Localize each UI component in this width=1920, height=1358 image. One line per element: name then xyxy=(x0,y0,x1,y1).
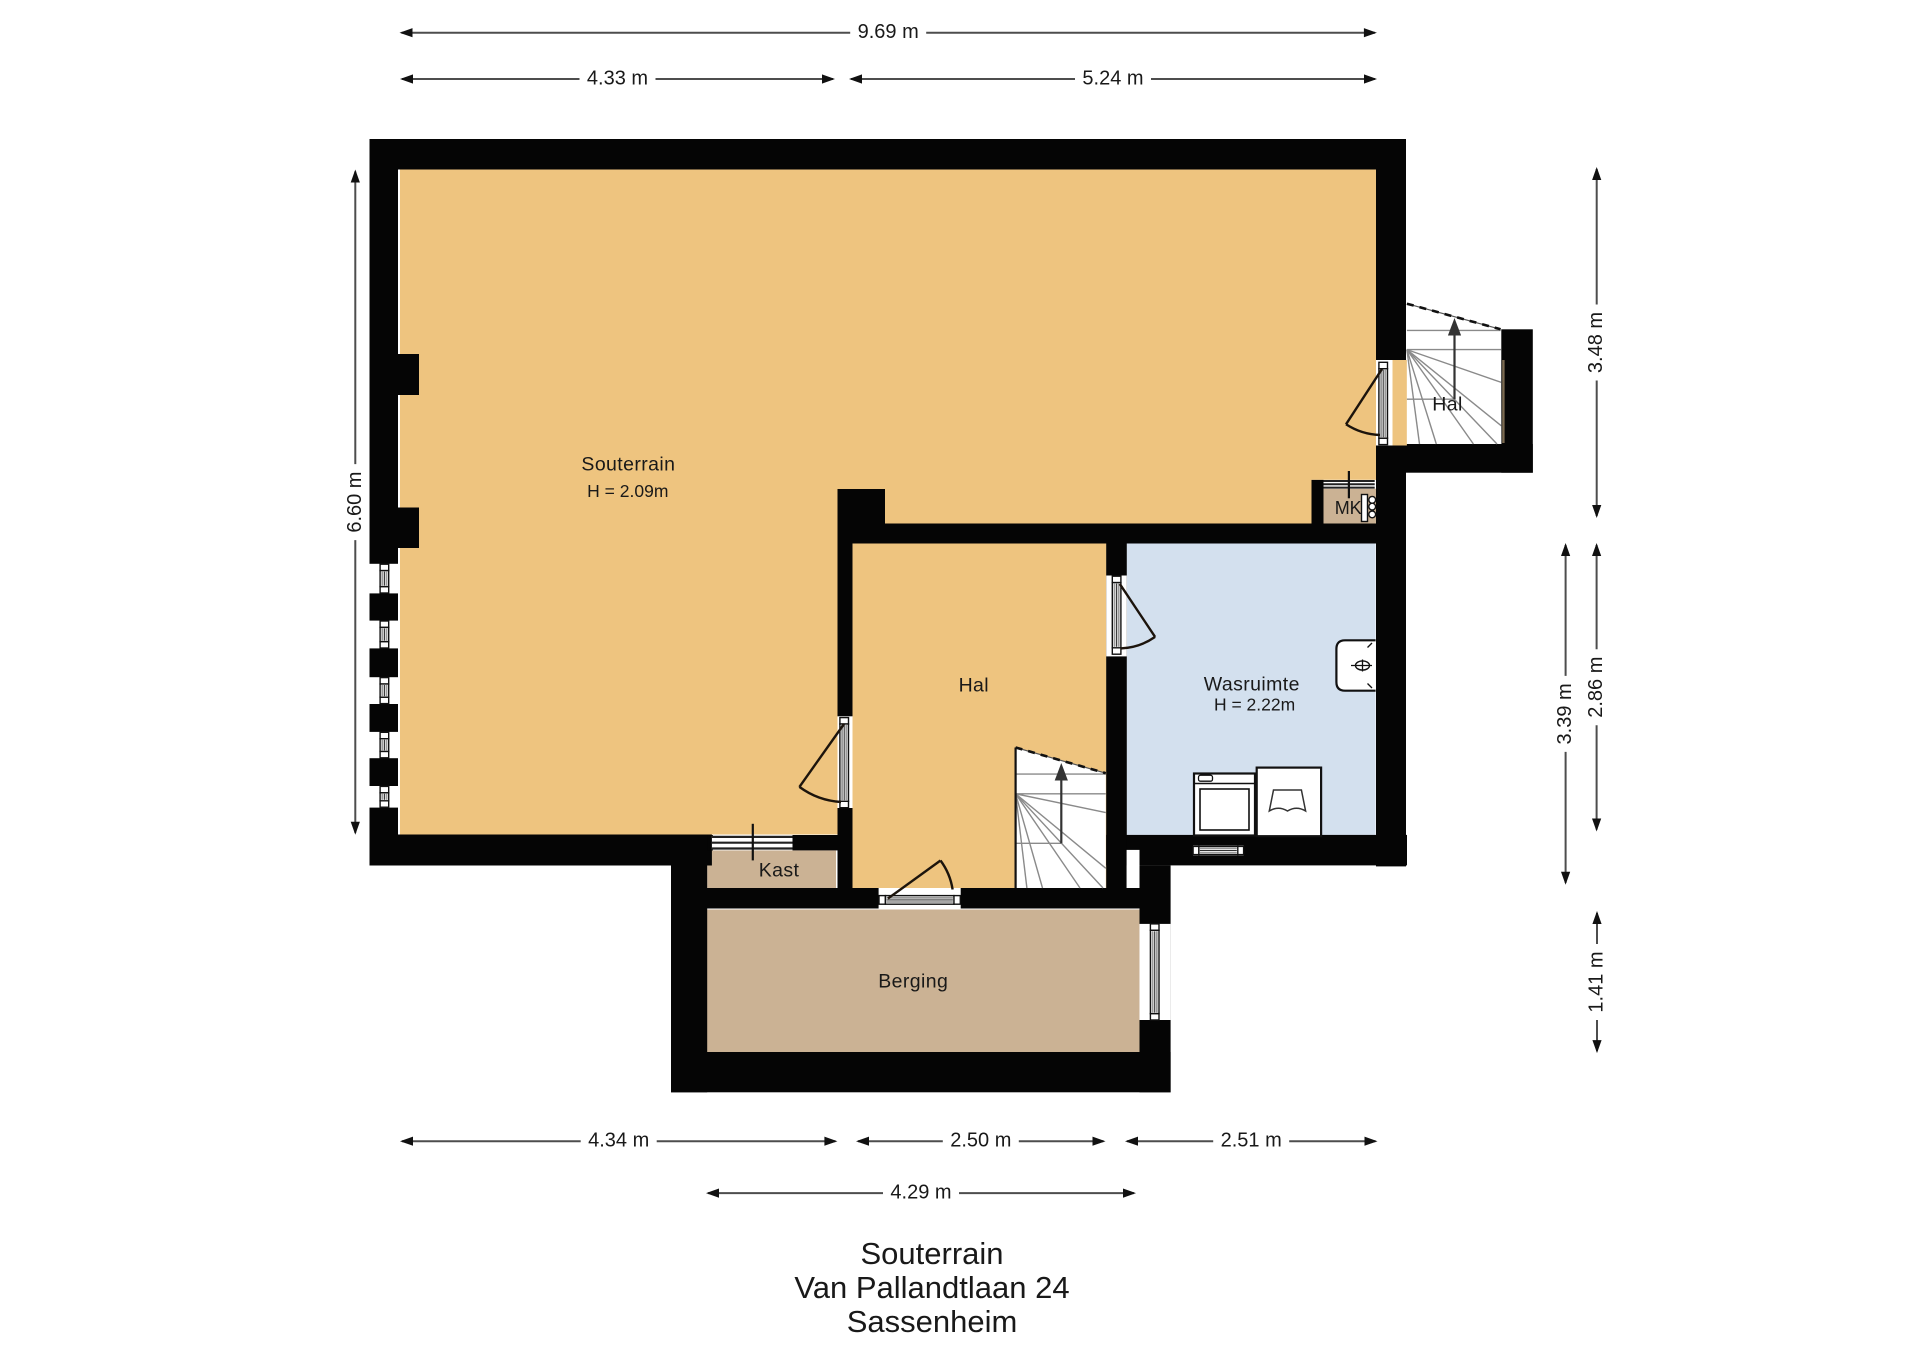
svg-text:2.51 m: 2.51 m xyxy=(1221,1130,1282,1152)
svg-text:5.24 m: 5.24 m xyxy=(1082,68,1143,90)
svg-text:6.60 m: 6.60 m xyxy=(344,472,366,533)
svg-text:3.39 m: 3.39 m xyxy=(1554,683,1576,744)
svg-text:Wasruimte: Wasruimte xyxy=(1204,673,1300,695)
svg-text:H = 2.22m: H = 2.22m xyxy=(1214,695,1295,715)
svg-text:Hal: Hal xyxy=(959,675,989,697)
svg-text:Souterrain: Souterrain xyxy=(860,1236,1003,1271)
svg-text:H = 2.09m: H = 2.09m xyxy=(587,481,668,501)
svg-text:2.50 m: 2.50 m xyxy=(950,1130,1011,1152)
svg-text:2.86 m: 2.86 m xyxy=(1585,657,1607,718)
svg-text:Hal: Hal xyxy=(1432,394,1462,416)
svg-text:4.34 m: 4.34 m xyxy=(588,1130,649,1152)
svg-text:Kast: Kast xyxy=(759,860,800,882)
svg-text:Sassenheim: Sassenheim xyxy=(847,1304,1018,1339)
svg-text:Souterrain: Souterrain xyxy=(581,454,675,476)
svg-text:Berging: Berging xyxy=(878,971,948,993)
svg-text:MK: MK xyxy=(1335,498,1362,518)
svg-text:9.69 m: 9.69 m xyxy=(858,21,919,43)
svg-text:Van Pallandtlaan 24: Van Pallandtlaan 24 xyxy=(794,1270,1069,1305)
svg-text:1.41 m: 1.41 m xyxy=(1586,951,1608,1012)
svg-text:4.29 m: 4.29 m xyxy=(890,1182,951,1204)
svg-text:3.48 m: 3.48 m xyxy=(1585,312,1607,373)
svg-text:4.33 m: 4.33 m xyxy=(587,68,648,90)
